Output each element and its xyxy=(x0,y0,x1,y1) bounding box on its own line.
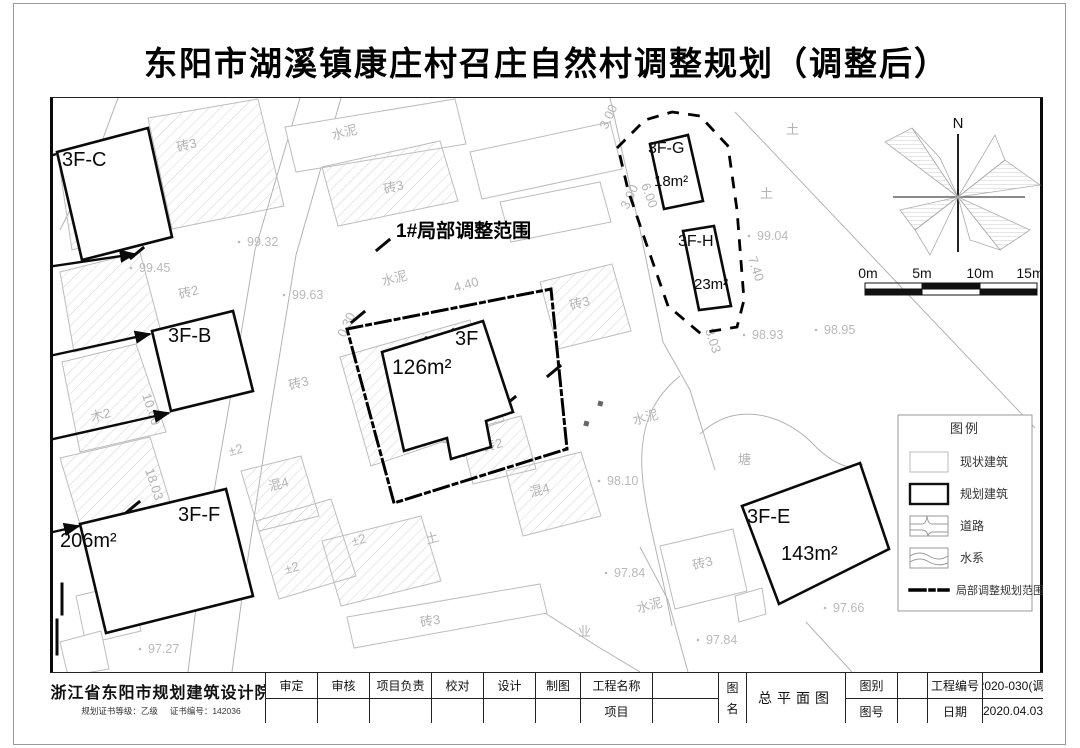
existing-building-outline xyxy=(60,631,109,672)
drawing-number-value xyxy=(897,698,927,723)
project-name-value xyxy=(652,673,718,698)
dimension-label: 0.30 xyxy=(334,310,358,339)
field-approved: 审定 xyxy=(265,673,317,698)
drawing-name-char-1: 图 xyxy=(726,679,738,696)
building-label-3f-g: 3F-G xyxy=(648,140,684,157)
material-label: 土 xyxy=(424,529,440,547)
scale-tick-label: 10m xyxy=(966,265,993,281)
adjustment-area-label: 1#局部调整范围 xyxy=(396,219,531,242)
building-label-3f-e: 3F-E xyxy=(747,506,790,528)
hatched-building xyxy=(148,99,284,229)
field-reviewed: 审核 xyxy=(317,673,369,698)
drawing-name-char-2: 名 xyxy=(726,700,738,717)
north-label: N xyxy=(953,115,964,132)
material-label: 水泥 xyxy=(631,407,660,428)
material-label: 水泥 xyxy=(380,268,409,289)
building-label-3f-c: 3F-C xyxy=(62,149,106,171)
scale-tick-label: 0m xyxy=(858,265,877,281)
signature-cell xyxy=(535,698,580,723)
scale-tick-label: 15m xyxy=(1016,265,1043,281)
date-value: 2020.04.03 xyxy=(982,698,1043,723)
drawing-category-value xyxy=(897,673,927,698)
material-label: 砖2 xyxy=(177,282,200,302)
spot-elevation: 99.63 xyxy=(292,288,323,302)
institute-cell: 浙江省东阳市规划建筑设计院 规划证书等级：乙级 证书编号：142036 xyxy=(50,673,265,723)
field-project-name: 工程名称 xyxy=(580,673,652,698)
legend-label-boundary: 局部调整规划范围 xyxy=(956,583,1043,597)
spot-elevation: 99.45 xyxy=(139,261,170,275)
drawing-sheet: 东阳市湖溪镇康庄村召庄自然村调整规划（调整后） xyxy=(0,0,1080,748)
site-plan-map: 砖3 砖3 砖3 砖3 砖3 砖3 砖2 砖2 砖2 木2 混4 混4 ±2 ±… xyxy=(50,98,1043,672)
spot-elevation: 97.27 xyxy=(148,642,179,656)
legend-label-existing: 现状建筑 xyxy=(960,454,1008,469)
drawing-name-value: 总平面图 xyxy=(746,673,845,723)
project-value xyxy=(652,698,718,723)
material-label: 业 xyxy=(578,624,591,639)
field-project: 项目 xyxy=(580,698,652,723)
title-block: 浙江省东阳市规划建筑设计院 规划证书等级：乙级 证书编号：142036 审定 审… xyxy=(50,672,1043,722)
field-project-lead: 项目负责 xyxy=(369,673,431,698)
field-drawing-number: 图号 xyxy=(845,698,897,723)
legend-label-road: 道路 xyxy=(960,518,984,533)
field-designed: 设计 xyxy=(483,673,535,698)
spot-elevation: 99.32 xyxy=(247,235,278,249)
field-drawing-category: 图别 xyxy=(845,673,897,698)
signature-cell xyxy=(483,698,535,723)
spot-elevation: 97.66 xyxy=(833,601,864,615)
signature-cell xyxy=(317,698,369,723)
legend-box xyxy=(898,415,1032,611)
material-label: 土 xyxy=(786,122,799,137)
certificate-number: 证书编号：142036 xyxy=(170,705,241,717)
building-area-3f-e: 143m² xyxy=(781,543,838,565)
spot-elevation: 98.10 xyxy=(607,474,638,488)
legend-title: 图例 xyxy=(950,421,980,436)
building-label-3f-f: 3F-F xyxy=(178,504,220,526)
project-code-value: 2020-030(调) xyxy=(982,673,1043,698)
signature-cell xyxy=(369,698,431,723)
legend: 图例 现状建筑 规划建筑 道路 水系 局部调整规划范围 xyxy=(898,415,1043,611)
material-label: ±2 xyxy=(227,441,245,459)
north-arrow: N xyxy=(885,115,1040,255)
institute-name: 浙江省东阳市规划建筑设计院 xyxy=(51,679,266,703)
building-area-3f-main: 126m² xyxy=(392,356,452,379)
spot-elevation: 97.84 xyxy=(706,633,737,647)
legend-label-planned: 规划建筑 xyxy=(960,486,1008,501)
sheet-title-bar: 东阳市湖溪镇康庄村召庄自然村调整规划（调整后） xyxy=(50,25,1043,98)
scale-bar: 0m 5m 10m 15m xyxy=(858,265,1043,295)
material-label: 土 xyxy=(760,186,773,201)
signature-cell xyxy=(265,698,317,723)
field-project-code: 工程编号 xyxy=(927,673,982,698)
field-drafted: 制图 xyxy=(535,673,580,698)
spot-elevation: 97.84 xyxy=(614,566,645,580)
legend-label-water: 水系 xyxy=(960,551,984,565)
building-label-3f-main: 3F xyxy=(455,328,478,350)
scale-tick-label: 5m xyxy=(912,265,931,281)
dimension-label: 7.40 xyxy=(745,254,767,283)
spot-elevation: 99.04 xyxy=(757,229,788,243)
planned-building-3f-e xyxy=(742,463,889,604)
spot-elevation: 98.95 xyxy=(824,323,855,337)
dimension-label: 4.40 xyxy=(452,274,480,295)
material-label: 水泥 xyxy=(635,595,664,616)
field-date: 日期 xyxy=(927,698,982,723)
material-label: 塘 xyxy=(738,452,751,467)
building-area-3f-f: 206m² xyxy=(60,530,117,552)
building-label-3f-h: 3F-H xyxy=(678,233,714,250)
building-label-3f-b: 3F-B xyxy=(168,325,211,347)
building-area-3f-g: 18m² xyxy=(654,173,688,190)
spot-elevation: 98.93 xyxy=(752,328,783,342)
field-drawing-name: 图 名 xyxy=(718,673,746,723)
material-label: 砖3 xyxy=(287,373,310,393)
building-area-3f-h: 23m² xyxy=(694,276,728,293)
signature-cell xyxy=(431,698,483,723)
legend-swatch-existing xyxy=(910,452,948,472)
page-title: 东阳市湖溪镇康庄村召庄自然村调整规划（调整后） xyxy=(144,37,949,85)
certificate-grade: 规划证书等级：乙级 xyxy=(81,705,158,717)
field-proofread: 校对 xyxy=(431,673,483,698)
legend-swatch-planned xyxy=(910,484,948,504)
